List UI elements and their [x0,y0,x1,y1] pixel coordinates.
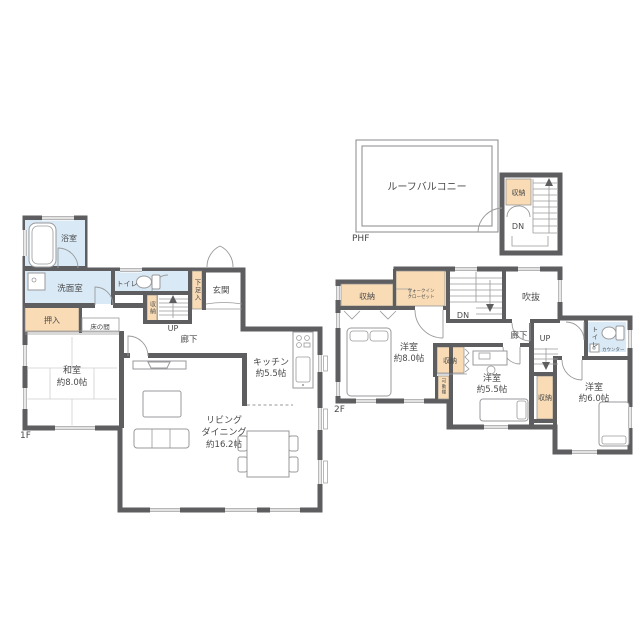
f2-floor-label: 2F [334,405,345,415]
stair-storage-1f-label: 収納 [149,301,156,315]
phf-storage-label: 収納 [512,188,526,197]
room6-label: 洋室 [585,381,603,393]
bed-icon [480,399,528,421]
f2-plan: DN UP [334,266,633,454]
entrance-label: 玄関 [212,285,229,296]
living-label-1: リビング [206,414,242,426]
storage-mid-label: 収納 [443,356,457,365]
toilet-icon [137,275,161,289]
phf-plan: ルーフバルコニー PHF 収納 DN [352,140,560,253]
sofa-icon [134,429,189,448]
shoe-cabinet-label: 下足入 [193,278,201,301]
kitchen-counter [293,332,313,388]
movable-shelf-label: 可動棚 [441,379,446,396]
f1-floor-label: 1F [20,431,31,441]
room6-size: 約6.0帖 [579,393,610,404]
storage-e-label: 収納 [538,393,552,402]
wic-label-2: クローゼット [408,293,435,300]
counter-label: カウンター [602,346,625,353]
dining-set-icon [238,431,298,477]
vanity-icon [28,273,45,290]
washitsu-size: 約8.0帖 [57,377,88,388]
toilet-1f-label: トイレ [117,280,138,288]
hallway-2f-label: 廊下 [510,330,528,341]
void-label: 吹抜 [522,291,540,303]
up-2f-label: UP [540,334,551,343]
bathtub-icon [29,223,56,267]
table-icon [143,391,181,417]
washroom-label: 洗面室 [57,283,83,294]
phf-floor-label: PHF [352,234,369,244]
washitsu-label: 和室 [63,364,81,376]
room8-size: 約8.0帖 [394,353,425,364]
room55-size: 約5.5帖 [477,384,508,395]
wic-label-1: ウォークイン [408,287,435,294]
bath-label: 浴室 [61,233,77,243]
entrance-door-icon [207,246,233,267]
kitchen-size: 約5.5帖 [256,368,287,379]
bed-icon [347,328,391,396]
room8-label: 洋室 [400,341,418,353]
storage-nw-label: 収納 [359,291,375,301]
hallway-1f-label: 廊下 [180,334,198,345]
f1-plan: 浴室 洗面室 トイレ 押入 床の間 収納 下足入 玄関 UP 廊下 和室 約8.… [20,215,328,512]
tokonoma-label: 床の間 [90,322,110,331]
up-1f-label: UP [168,324,179,333]
living-label-2: ダイニング [201,426,246,438]
toilet-2f-label: トイレ [590,326,598,349]
dn-2f-label: DN [457,311,469,320]
room55-label: 洋室 [483,372,501,384]
kitchen-label: キッチン [253,357,289,368]
oshiire-label: 押入 [44,315,60,325]
roof-balcony-label: ルーフバルコニー [387,181,466,193]
living-size: 約16.2帖 [206,439,242,450]
tv-board-icon [133,361,186,369]
floor-plan: ルーフバルコニー PHF 収納 DN [0,0,640,640]
bed-icon [599,402,629,446]
phf-dn-label: DN [512,222,524,231]
floor-plan-page: ルーフバルコニー PHF 収納 DN [0,0,640,640]
